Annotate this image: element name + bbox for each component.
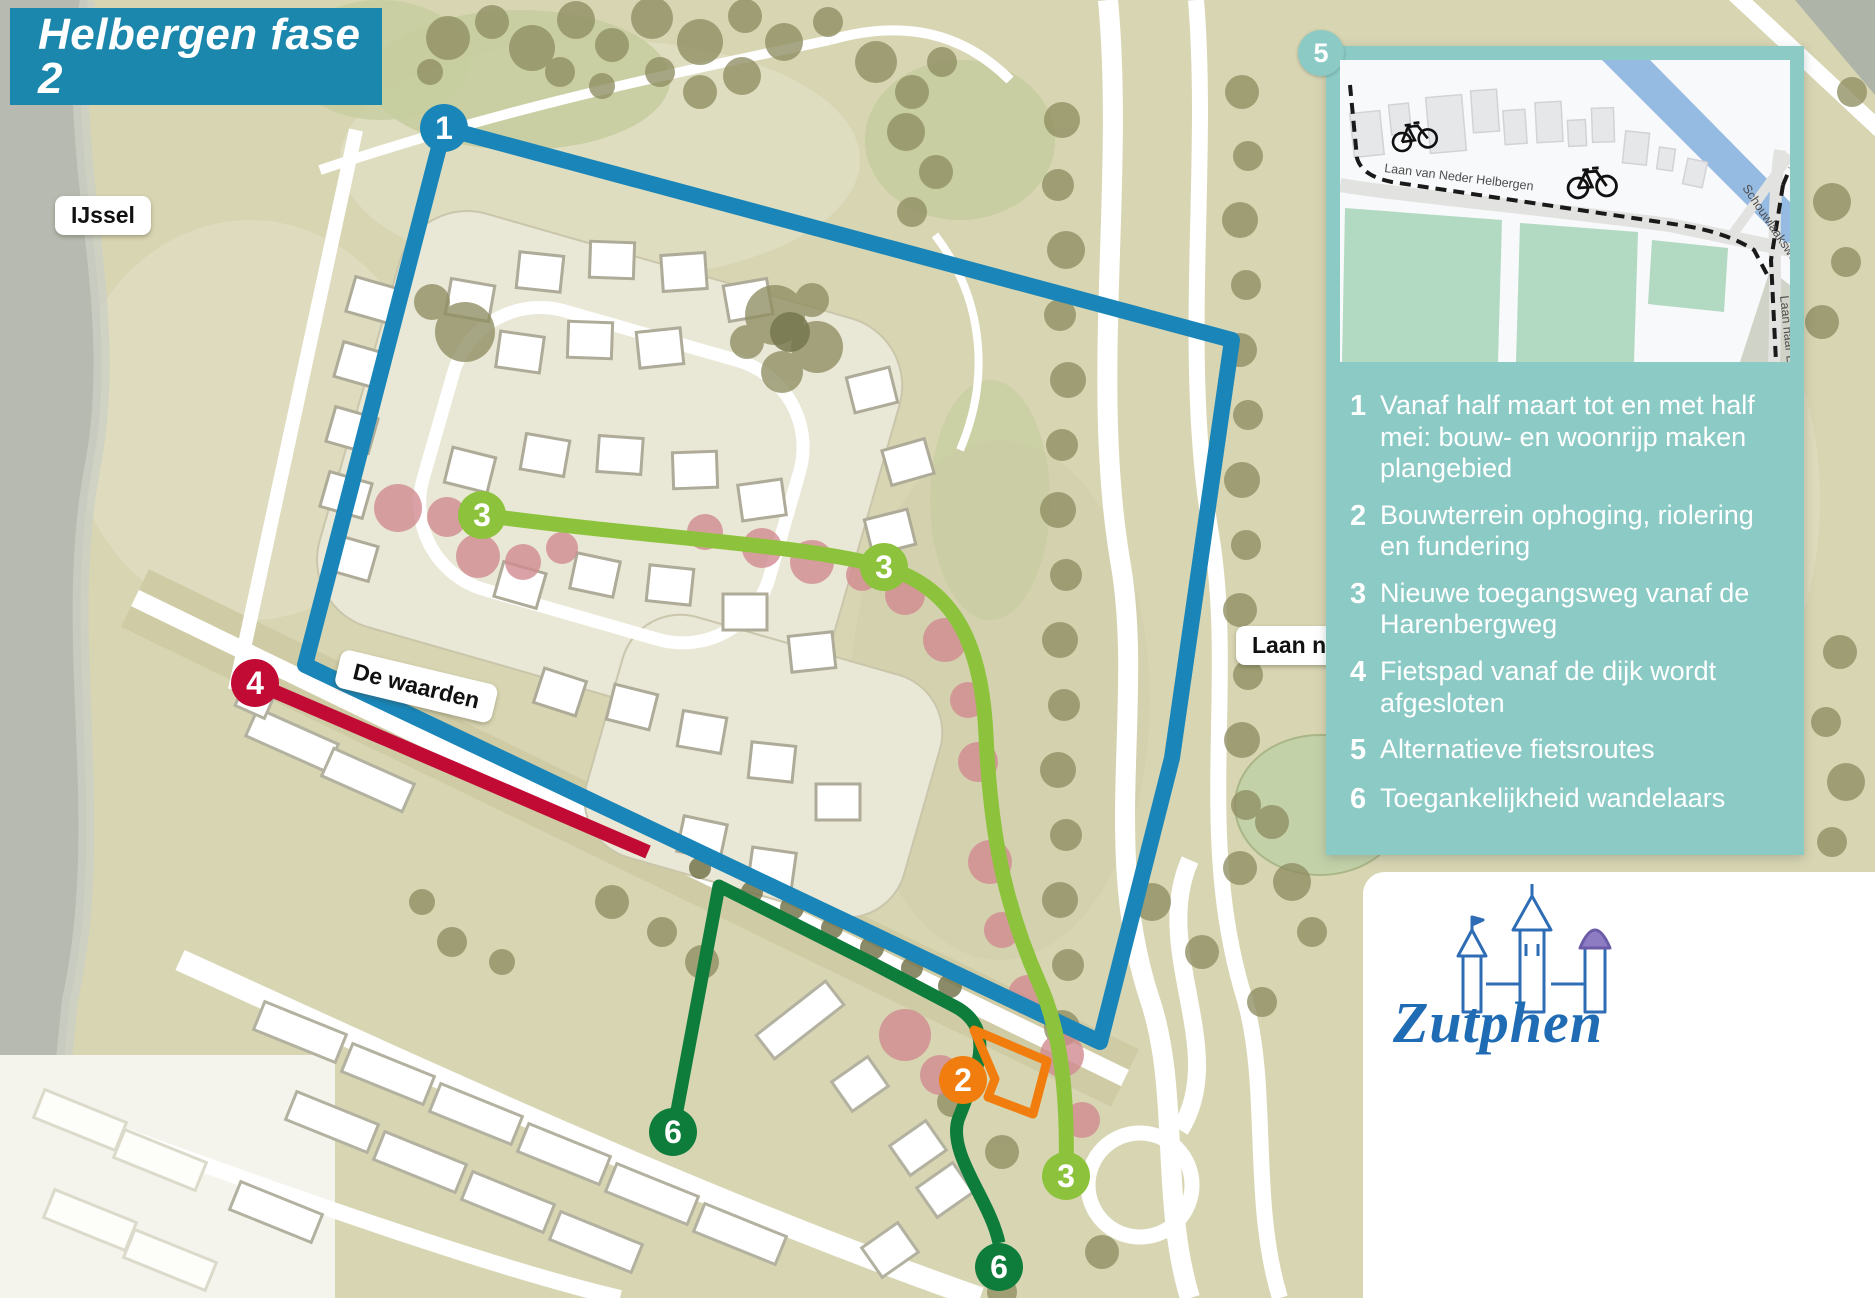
legend-item-number: 5: [1350, 734, 1370, 767]
marker-3-start: 3: [458, 491, 506, 539]
legend-item-1: 1 Vanaf half maart tot en met half mei: …: [1350, 390, 1784, 485]
legend-item-text: Bouwterrein ophoging, riolering en funde…: [1380, 500, 1778, 563]
legend-item-5: 5 Alternatieve fietsroutes: [1350, 734, 1784, 767]
legend-item-text: Vanaf half maart tot en met half mei: bo…: [1380, 390, 1778, 485]
marker-1: 1: [420, 104, 468, 152]
inset-map: Laan van Neder Helbergen Schouwlaaksweg …: [1340, 60, 1790, 362]
zutphen-logo-text: Zutphen: [1393, 994, 1603, 1052]
marker-3-mid: 3: [860, 543, 908, 591]
legend-item-number: 1: [1350, 390, 1370, 485]
badge-number: 5: [1313, 40, 1328, 67]
svg-text:6: 6: [664, 1114, 682, 1150]
zutphen-logo-box: Zutphen: [1363, 872, 1875, 1298]
marker-6-left: 6: [649, 1108, 697, 1156]
legend-item-number: 2: [1350, 500, 1370, 563]
legend-panel: 5: [1326, 46, 1804, 855]
legend-item-text: Fietspad vanaf de dijk wordt afgesloten: [1380, 656, 1778, 719]
legend-item-text: Alternatieve fietsroutes: [1380, 734, 1655, 767]
svg-text:3: 3: [1057, 1158, 1075, 1194]
poster: 1 3 3 4 2 3 6 6 IJssel De waarden Laan n…: [0, 0, 1875, 1298]
page-title: Helbergen fase 2: [10, 8, 382, 105]
legend-item-2: 2 Bouwterrein ophoging, riolering en fun…: [1350, 500, 1784, 563]
legend-list: 1 Vanaf half maart tot en met half mei: …: [1350, 390, 1784, 831]
legend-item-number: 3: [1350, 578, 1370, 641]
marker-2: 2: [939, 1056, 987, 1104]
marker-3-end: 3: [1042, 1152, 1090, 1200]
legend-item-text: Toegankelijkheid wandelaars: [1380, 783, 1725, 816]
marker-4: 4: [231, 659, 279, 707]
marker-6-bottom: 6: [975, 1243, 1023, 1291]
legend-item-6: 6 Toegankelijkheid wandelaars: [1350, 783, 1784, 816]
svg-text:6: 6: [990, 1249, 1008, 1285]
legend-item-number: 6: [1350, 783, 1370, 816]
legend-item-3: 3 Nieuwe toegangsweg vanaf de Harenbergw…: [1350, 578, 1784, 641]
legend-item-4: 4 Fietspad vanaf de dijk wordt afgeslote…: [1350, 656, 1784, 719]
svg-text:4: 4: [246, 665, 264, 701]
svg-text:1: 1: [435, 110, 453, 146]
legend-badge-5: 5: [1298, 30, 1344, 76]
label-ijssel: IJssel: [55, 196, 151, 235]
legend-item-number: 4: [1350, 656, 1370, 719]
legend-item-text: Nieuwe toegangsweg vanaf de Harenbergweg: [1380, 578, 1778, 641]
svg-text:3: 3: [473, 497, 491, 533]
svg-text:3: 3: [875, 549, 893, 585]
svg-text:2: 2: [954, 1062, 972, 1098]
